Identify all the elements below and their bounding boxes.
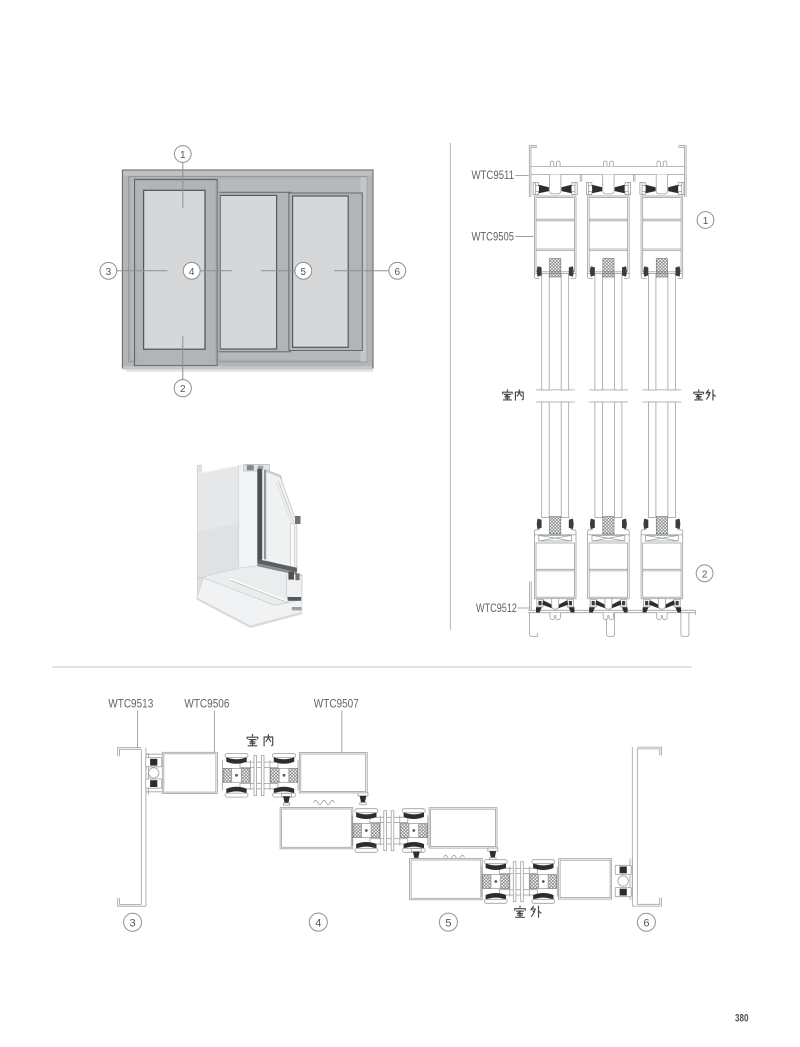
svg-text:5: 5 bbox=[301, 267, 307, 278]
svg-text:2: 2 bbox=[180, 384, 186, 395]
svg-text:3: 3 bbox=[106, 267, 112, 278]
svg-text:WTC9512: WTC9512 bbox=[476, 601, 517, 615]
svg-text:WTC9505: WTC9505 bbox=[472, 230, 515, 244]
svg-text:6: 6 bbox=[395, 267, 401, 278]
svg-text:WTC9506: WTC9506 bbox=[184, 697, 229, 711]
svg-text:1: 1 bbox=[703, 216, 709, 227]
svg-text:6: 6 bbox=[643, 918, 649, 930]
svg-text:5: 5 bbox=[445, 917, 451, 929]
svg-text:1: 1 bbox=[180, 150, 186, 161]
svg-text:380: 380 bbox=[735, 1013, 749, 1025]
svg-text:4: 4 bbox=[189, 267, 195, 278]
svg-text:WTC9513: WTC9513 bbox=[108, 697, 153, 711]
svg-text:2: 2 bbox=[702, 569, 708, 580]
svg-text:WTC9507: WTC9507 bbox=[314, 697, 359, 711]
svg-text:3: 3 bbox=[130, 918, 136, 930]
svg-text:WTC9511: WTC9511 bbox=[472, 168, 515, 182]
svg-text:4: 4 bbox=[315, 917, 321, 929]
